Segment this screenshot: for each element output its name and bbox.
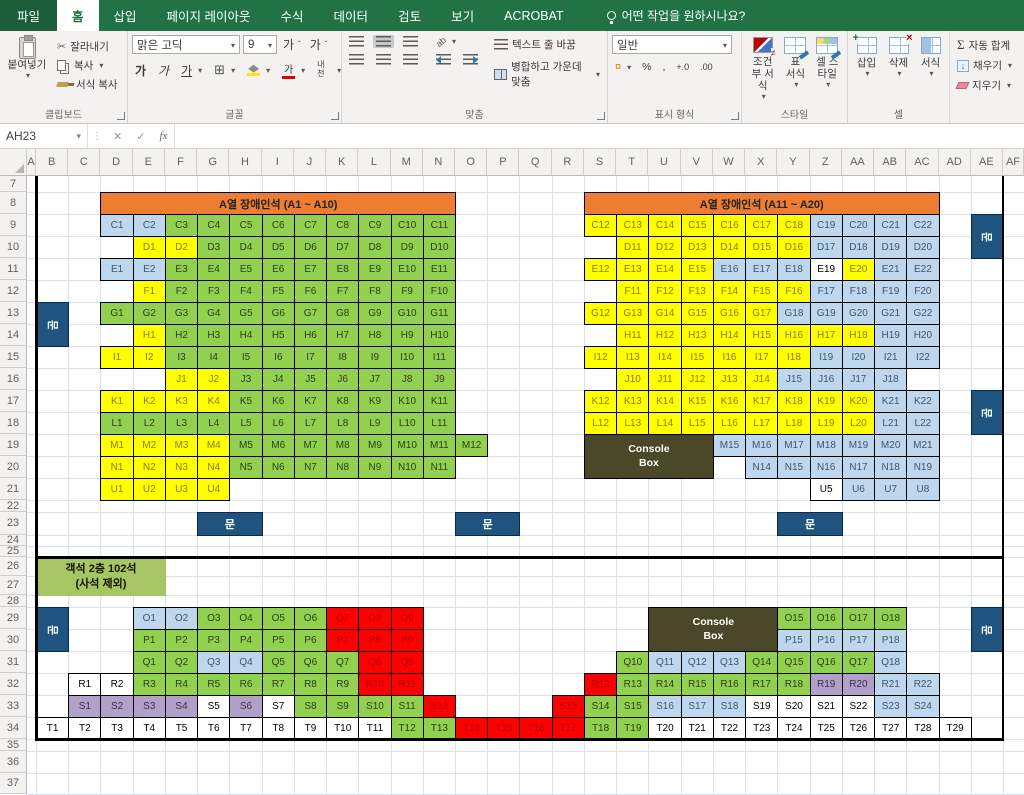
seat-I4[interactable]: I4 [197, 346, 230, 369]
seat-D7[interactable]: D7 [326, 236, 359, 259]
column-header-W[interactable]: W [713, 149, 745, 175]
seat-P8[interactable]: P8 [358, 629, 391, 652]
seat-F2[interactable]: F2 [165, 280, 198, 303]
seat-D19[interactable]: D19 [874, 236, 907, 259]
seat-J15[interactable]: J15 [777, 368, 810, 391]
seat-H3[interactable]: H3 [197, 324, 230, 347]
seat-Q14[interactable]: Q14 [745, 651, 778, 674]
seat-E5[interactable]: E5 [229, 258, 262, 281]
clipboard-dialog-launcher[interactable] [117, 112, 125, 120]
seat-E9[interactable]: E9 [358, 258, 391, 281]
column-header-U[interactable]: U [648, 149, 680, 175]
seat-T4[interactable]: T4 [133, 717, 166, 740]
seat-H4[interactable]: H4 [229, 324, 262, 347]
formula-input[interactable] [174, 124, 1024, 148]
seat-E8[interactable]: E8 [326, 258, 359, 281]
seat-R12[interactable]: R12 [584, 673, 617, 696]
seat-S18[interactable]: S18 [713, 695, 746, 718]
seat-T24[interactable]: T24 [777, 717, 810, 740]
seat-O16[interactable]: O16 [810, 607, 843, 630]
row-header-12[interactable]: 12 [0, 280, 27, 302]
seat-G1[interactable]: G1 [100, 302, 133, 325]
seat-Q12[interactable]: Q12 [681, 651, 714, 674]
seat-O2[interactable]: O2 [165, 607, 198, 630]
seat-L15[interactable]: L15 [681, 412, 714, 435]
seat-G19[interactable]: G19 [810, 302, 843, 325]
seat-N6[interactable]: N6 [262, 456, 295, 479]
seat-L10[interactable]: L10 [391, 412, 424, 435]
seat-M16[interactable]: M16 [745, 434, 778, 457]
seat-R3[interactable]: R3 [133, 673, 166, 696]
row-header-16[interactable]: 16 [0, 368, 27, 390]
seat-Q17[interactable]: Q17 [842, 651, 875, 674]
seat-T17[interactable]: T17 [552, 717, 585, 740]
column-header-I[interactable]: I [262, 149, 294, 175]
seat-L19[interactable]: L19 [810, 412, 843, 435]
seat-O17[interactable]: O17 [842, 607, 875, 630]
seat-K4[interactable]: K4 [197, 390, 230, 413]
align-left-button[interactable] [346, 53, 367, 66]
column-header-AE[interactable]: AE [971, 149, 1003, 175]
seat-S23[interactable]: S23 [874, 695, 907, 718]
column-header-Z[interactable]: Z [810, 149, 842, 175]
seat-T8[interactable]: T8 [262, 717, 295, 740]
seat-L17[interactable]: L17 [745, 412, 778, 435]
row-header-32[interactable]: 32 [0, 673, 27, 695]
seat-F1[interactable]: F1 [133, 280, 166, 303]
seat-I5[interactable]: I5 [229, 346, 262, 369]
seat-R1[interactable]: R1 [68, 673, 101, 696]
seat-H8[interactable]: H8 [358, 324, 391, 347]
seat-T28[interactable]: T28 [906, 717, 939, 740]
seat-J5[interactable]: J5 [294, 368, 327, 391]
seat-T15[interactable]: T15 [487, 717, 520, 740]
fill-button[interactable]: ↓ 채우기 [954, 57, 1020, 74]
seat-E20[interactable]: E20 [842, 258, 875, 281]
merge-center-button[interactable]: 병합하고 가운데 맞춤 [491, 58, 603, 90]
seat-C19[interactable]: C19 [810, 214, 843, 237]
seat-E14[interactable]: E14 [648, 258, 681, 281]
seat-D18[interactable]: D18 [842, 236, 875, 259]
seat-C2[interactable]: C2 [133, 214, 166, 237]
seat-Q11[interactable]: Q11 [648, 651, 681, 674]
seat-F4[interactable]: F4 [229, 280, 262, 303]
seat-O9[interactable]: O9 [391, 607, 424, 630]
seat-E6[interactable]: E6 [262, 258, 295, 281]
tab-insert[interactable]: 삽입 [99, 0, 152, 31]
seat-N9[interactable]: N9 [358, 456, 391, 479]
seat-R18[interactable]: R18 [777, 673, 810, 696]
seat-I15[interactable]: I15 [681, 346, 714, 369]
seat-T5[interactable]: T5 [165, 717, 198, 740]
seat-P1[interactable]: P1 [133, 629, 166, 652]
seat-H19[interactable]: H19 [874, 324, 907, 347]
seat-E13[interactable]: E13 [616, 258, 649, 281]
seat-L5[interactable]: L5 [229, 412, 262, 435]
row-header-24[interactable]: 24 [0, 535, 27, 546]
seat-Q13[interactable]: Q13 [713, 651, 746, 674]
tab-page-layout[interactable]: 페이지 레이아웃 [152, 0, 266, 31]
row-header-14[interactable]: 14 [0, 324, 27, 346]
seat-S22[interactable]: S22 [842, 695, 875, 718]
seat-E2[interactable]: E2 [133, 258, 166, 281]
formula-bar-splitter[interactable]: ⋮ [88, 124, 106, 148]
column-header-D[interactable]: D [100, 149, 132, 175]
seat-R2[interactable]: R2 [100, 673, 133, 696]
seat-J2[interactable]: J2 [197, 368, 230, 391]
seat-H15[interactable]: H15 [745, 324, 778, 347]
seat-G15[interactable]: G15 [681, 302, 714, 325]
seat-P5[interactable]: P5 [262, 629, 295, 652]
align-right-button[interactable] [400, 53, 421, 66]
seat-C18[interactable]: C18 [777, 214, 810, 237]
seat-K5[interactable]: K5 [229, 390, 262, 413]
seat-N10[interactable]: N10 [391, 456, 424, 479]
seat-M19[interactable]: M19 [842, 434, 875, 457]
seat-U2[interactable]: U2 [133, 478, 166, 501]
seat-T26[interactable]: T26 [842, 717, 875, 740]
seat-P17[interactable]: P17 [842, 629, 875, 652]
seat-T3[interactable]: T3 [100, 717, 133, 740]
seat-I3[interactable]: I3 [165, 346, 198, 369]
seat-H18[interactable]: H18 [842, 324, 875, 347]
seat-L20[interactable]: L20 [842, 412, 875, 435]
bottom-align-button[interactable] [400, 35, 421, 48]
seat-E12[interactable]: E12 [584, 258, 617, 281]
seat-F11[interactable]: F11 [616, 280, 649, 303]
comma-style-button[interactable]: , [659, 60, 668, 74]
seat-T23[interactable]: T23 [745, 717, 778, 740]
grow-font-button[interactable]: 가ˆ [280, 35, 304, 54]
row-header-11[interactable]: 11 [0, 258, 27, 280]
seat-L8[interactable]: L8 [326, 412, 359, 435]
format-as-table-button[interactable]: 표 서식 [781, 35, 809, 103]
seat-O15[interactable]: O15 [777, 607, 810, 630]
phonetic-button[interactable]: 내천 [314, 60, 344, 80]
seat-Q6[interactable]: Q6 [294, 651, 327, 674]
alignment-dialog-launcher[interactable] [597, 112, 605, 120]
seat-M4[interactable]: M4 [197, 434, 230, 457]
shrink-font-button[interactable]: 가ˇ [307, 35, 331, 54]
seat-R8[interactable]: R8 [294, 673, 327, 696]
seat-U7[interactable]: U7 [874, 478, 907, 501]
seat-T2[interactable]: T2 [68, 717, 101, 740]
seat-L12[interactable]: L12 [584, 412, 617, 435]
seat-S16[interactable]: S16 [648, 695, 681, 718]
seat-F19[interactable]: F19 [874, 280, 907, 303]
row-header-25[interactable]: 25 [0, 546, 27, 557]
seat-R7[interactable]: R7 [262, 673, 295, 696]
column-header-F[interactable]: F [165, 149, 197, 175]
copy-button[interactable]: 복사 [54, 57, 121, 74]
seat-H12[interactable]: H12 [648, 324, 681, 347]
row-header-7[interactable]: 7 [0, 176, 27, 192]
seat-L4[interactable]: L4 [197, 412, 230, 435]
seat-M1[interactable]: M1 [100, 434, 133, 457]
seat-G3[interactable]: G3 [165, 302, 198, 325]
seat-G13[interactable]: G13 [616, 302, 649, 325]
format-painter-button[interactable]: 서식 복사 [54, 76, 121, 93]
seat-H16[interactable]: H16 [777, 324, 810, 347]
seat-D3[interactable]: D3 [197, 236, 230, 259]
seat-C15[interactable]: C15 [681, 214, 714, 237]
seat-K18[interactable]: K18 [777, 390, 810, 413]
seat-G4[interactable]: G4 [197, 302, 230, 325]
seat-K15[interactable]: K15 [681, 390, 714, 413]
seat-F17[interactable]: F17 [810, 280, 843, 303]
row-header-29[interactable]: 29 [0, 607, 27, 629]
autosum-button[interactable]: Σ 자동 합계 [954, 36, 1020, 54]
seat-G5[interactable]: G5 [229, 302, 262, 325]
seat-T6[interactable]: T6 [197, 717, 230, 740]
seat-P18[interactable]: P18 [874, 629, 907, 652]
seat-K14[interactable]: K14 [648, 390, 681, 413]
seat-P6[interactable]: P6 [294, 629, 327, 652]
column-header-C[interactable]: C [68, 149, 100, 175]
decrease-indent-button[interactable] [433, 53, 454, 66]
seat-G6[interactable]: G6 [262, 302, 295, 325]
seat-U6[interactable]: U6 [842, 478, 875, 501]
seat-U8[interactable]: U8 [906, 478, 939, 501]
bold-button[interactable]: 가 [132, 61, 149, 80]
seat-Q4[interactable]: Q4 [229, 651, 262, 674]
seat-C1[interactable]: C1 [100, 214, 133, 237]
seat-T19[interactable]: T19 [616, 717, 649, 740]
row-header-35[interactable]: 35 [0, 739, 27, 751]
seat-R9[interactable]: R9 [326, 673, 359, 696]
seat-O7[interactable]: O7 [326, 607, 359, 630]
seat-T25[interactable]: T25 [810, 717, 843, 740]
italic-button[interactable]: 가 [155, 61, 172, 80]
seat-K11[interactable]: K11 [423, 390, 456, 413]
seat-K1[interactable]: K1 [100, 390, 133, 413]
seat-N7[interactable]: N7 [294, 456, 327, 479]
tab-acrobat[interactable]: ACROBAT [489, 0, 579, 31]
seat-Q9[interactable]: Q9 [391, 651, 424, 674]
seat-J4[interactable]: J4 [262, 368, 295, 391]
seat-E11[interactable]: E11 [423, 258, 456, 281]
seat-G7[interactable]: G7 [294, 302, 327, 325]
row-header-10[interactable]: 10 [0, 236, 27, 258]
seat-K9[interactable]: K9 [358, 390, 391, 413]
seat-J16[interactable]: J16 [810, 368, 843, 391]
tell-me-search[interactable]: 어떤 작업을 원하시나요? [607, 0, 746, 31]
seat-H20[interactable]: H20 [906, 324, 939, 347]
seat-R17[interactable]: R17 [745, 673, 778, 696]
seat-S12[interactable]: S12 [423, 695, 456, 718]
format-cells-button[interactable]: 서식 [916, 35, 945, 80]
column-header-M[interactable]: M [391, 149, 423, 175]
seat-G12[interactable]: G12 [584, 302, 617, 325]
seat-G2[interactable]: G2 [133, 302, 166, 325]
seat-Q8[interactable]: Q8 [358, 651, 391, 674]
seat-S3[interactable]: S3 [133, 695, 166, 718]
font-color-button[interactable]: 가 [279, 60, 308, 80]
seat-T16[interactable]: T16 [519, 717, 552, 740]
seat-R5[interactable]: R5 [197, 673, 230, 696]
seat-T27[interactable]: T27 [874, 717, 907, 740]
seat-C4[interactable]: C4 [197, 214, 230, 237]
seat-R19[interactable]: R19 [810, 673, 843, 696]
seat-G9[interactable]: G9 [358, 302, 391, 325]
name-box-dropdown-icon[interactable]: ▾ [76, 131, 81, 142]
seat-K20[interactable]: K20 [842, 390, 875, 413]
seat-N16[interactable]: N16 [810, 456, 843, 479]
seat-G21[interactable]: G21 [874, 302, 907, 325]
seat-L13[interactable]: L13 [616, 412, 649, 435]
seat-Q15[interactable]: Q15 [777, 651, 810, 674]
seat-F9[interactable]: F9 [391, 280, 424, 303]
seat-M5[interactable]: M5 [229, 434, 262, 457]
seat-D5[interactable]: D5 [262, 236, 295, 259]
seat-C22[interactable]: C22 [906, 214, 939, 237]
column-header-AC[interactable]: AC [906, 149, 938, 175]
column-header-R[interactable]: R [552, 149, 584, 175]
seat-S8[interactable]: S8 [294, 695, 327, 718]
paste-button[interactable]: 붙여넣기 [4, 35, 50, 93]
seat-G18[interactable]: G18 [777, 302, 810, 325]
seat-T13[interactable]: T13 [423, 717, 456, 740]
seat-S21[interactable]: S21 [810, 695, 843, 718]
seat-Q3[interactable]: Q3 [197, 651, 230, 674]
seat-M8[interactable]: M8 [326, 434, 359, 457]
row-header-33[interactable]: 33 [0, 695, 27, 717]
seat-H14[interactable]: H14 [713, 324, 746, 347]
seat-N8[interactable]: N8 [326, 456, 359, 479]
seat-S6[interactable]: S6 [229, 695, 262, 718]
seat-M12[interactable]: M12 [455, 434, 488, 457]
seat-I13[interactable]: I13 [616, 346, 649, 369]
seat-O1[interactable]: O1 [133, 607, 166, 630]
row-header-18[interactable]: 18 [0, 412, 27, 434]
row-header-17[interactable]: 17 [0, 390, 27, 412]
seat-F8[interactable]: F8 [358, 280, 391, 303]
seat-F7[interactable]: F7 [326, 280, 359, 303]
seat-D13[interactable]: D13 [681, 236, 714, 259]
row-header-31[interactable]: 31 [0, 651, 27, 673]
seat-G16[interactable]: G16 [713, 302, 746, 325]
seat-I8[interactable]: I8 [326, 346, 359, 369]
seat-O5[interactable]: O5 [262, 607, 295, 630]
seat-F13[interactable]: F13 [681, 280, 714, 303]
seat-N5[interactable]: N5 [229, 456, 262, 479]
seat-R14[interactable]: R14 [648, 673, 681, 696]
seat-F16[interactable]: F16 [777, 280, 810, 303]
seat-J6[interactable]: J6 [326, 368, 359, 391]
seat-T21[interactable]: T21 [681, 717, 714, 740]
seat-S24[interactable]: S24 [906, 695, 939, 718]
row-header-21[interactable]: 21 [0, 478, 27, 500]
row-header-34[interactable]: 34 [0, 717, 27, 739]
seat-K2[interactable]: K2 [133, 390, 166, 413]
row-header-37[interactable]: 37 [0, 773, 27, 794]
seat-S5[interactable]: S5 [197, 695, 230, 718]
seat-I11[interactable]: I11 [423, 346, 456, 369]
seat-D4[interactable]: D4 [229, 236, 262, 259]
seat-S19[interactable]: S19 [745, 695, 778, 718]
seat-J13[interactable]: J13 [713, 368, 746, 391]
seat-R6[interactable]: R6 [229, 673, 262, 696]
seat-E18[interactable]: E18 [777, 258, 810, 281]
seat-T9[interactable]: T9 [294, 717, 327, 740]
seat-Q7[interactable]: Q7 [326, 651, 359, 674]
column-header-G[interactable]: G [197, 149, 229, 175]
seat-R11[interactable]: R11 [391, 673, 424, 696]
top-align-button[interactable] [346, 35, 367, 48]
seat-Q16[interactable]: Q16 [810, 651, 843, 674]
seat-K17[interactable]: K17 [745, 390, 778, 413]
seat-L2[interactable]: L2 [133, 412, 166, 435]
seat-N17[interactable]: N17 [842, 456, 875, 479]
seat-E3[interactable]: E3 [165, 258, 198, 281]
seat-N2[interactable]: N2 [133, 456, 166, 479]
seat-J11[interactable]: J11 [648, 368, 681, 391]
column-header-P[interactable]: P [487, 149, 519, 175]
seat-P15[interactable]: P15 [777, 629, 810, 652]
tab-review[interactable]: 검토 [383, 0, 436, 31]
column-header-AB[interactable]: AB [874, 149, 906, 175]
middle-align-button[interactable] [373, 35, 394, 48]
row-header-30[interactable]: 30 [0, 629, 27, 651]
seat-I12[interactable]: I12 [584, 346, 617, 369]
column-header-AD[interactable]: AD [939, 149, 971, 175]
row-header-15[interactable]: 15 [0, 346, 27, 368]
seat-S14[interactable]: S14 [584, 695, 617, 718]
seat-R13[interactable]: R13 [616, 673, 649, 696]
seat-C8[interactable]: C8 [326, 214, 359, 237]
column-header-Y[interactable]: Y [777, 149, 809, 175]
seat-S11[interactable]: S11 [391, 695, 424, 718]
seat-C16[interactable]: C16 [713, 214, 746, 237]
seat-K19[interactable]: K19 [810, 390, 843, 413]
seat-L16[interactable]: L16 [713, 412, 746, 435]
seat-T18[interactable]: T18 [584, 717, 617, 740]
seat-I17[interactable]: I17 [745, 346, 778, 369]
seat-T14[interactable]: T14 [455, 717, 488, 740]
seat-J9[interactable]: J9 [423, 368, 456, 391]
seat-F20[interactable]: F20 [906, 280, 939, 303]
row-header-28[interactable]: 28 [0, 595, 27, 607]
seat-H13[interactable]: H13 [681, 324, 714, 347]
seat-H5[interactable]: H5 [262, 324, 295, 347]
seat-U5[interactable]: U5 [810, 478, 843, 501]
seat-H7[interactable]: H7 [326, 324, 359, 347]
column-header-O[interactable]: O [455, 149, 487, 175]
font-size-select[interactable]: 9 [243, 35, 277, 54]
seat-E7[interactable]: E7 [294, 258, 327, 281]
seat-F10[interactable]: F10 [423, 280, 456, 303]
seat-P4[interactable]: P4 [229, 629, 262, 652]
column-header-T[interactable]: T [616, 149, 648, 175]
seat-J12[interactable]: J12 [681, 368, 714, 391]
seat-L22[interactable]: L22 [906, 412, 939, 435]
seat-F6[interactable]: F6 [294, 280, 327, 303]
seat-E10[interactable]: E10 [391, 258, 424, 281]
seat-S9[interactable]: S9 [326, 695, 359, 718]
seat-D15[interactable]: D15 [745, 236, 778, 259]
seat-M11[interactable]: M11 [423, 434, 456, 457]
row-header-27[interactable]: 27 [0, 576, 27, 595]
seat-J14[interactable]: J14 [745, 368, 778, 391]
seat-G10[interactable]: G10 [391, 302, 424, 325]
row-header-23[interactable]: 23 [0, 512, 27, 535]
seat-K8[interactable]: K8 [326, 390, 359, 413]
seat-C14[interactable]: C14 [648, 214, 681, 237]
seat-L21[interactable]: L21 [874, 412, 907, 435]
seat-Q1[interactable]: Q1 [133, 651, 166, 674]
decrease-decimal-button[interactable]: .00 [697, 61, 716, 73]
seat-N11[interactable]: N11 [423, 456, 456, 479]
